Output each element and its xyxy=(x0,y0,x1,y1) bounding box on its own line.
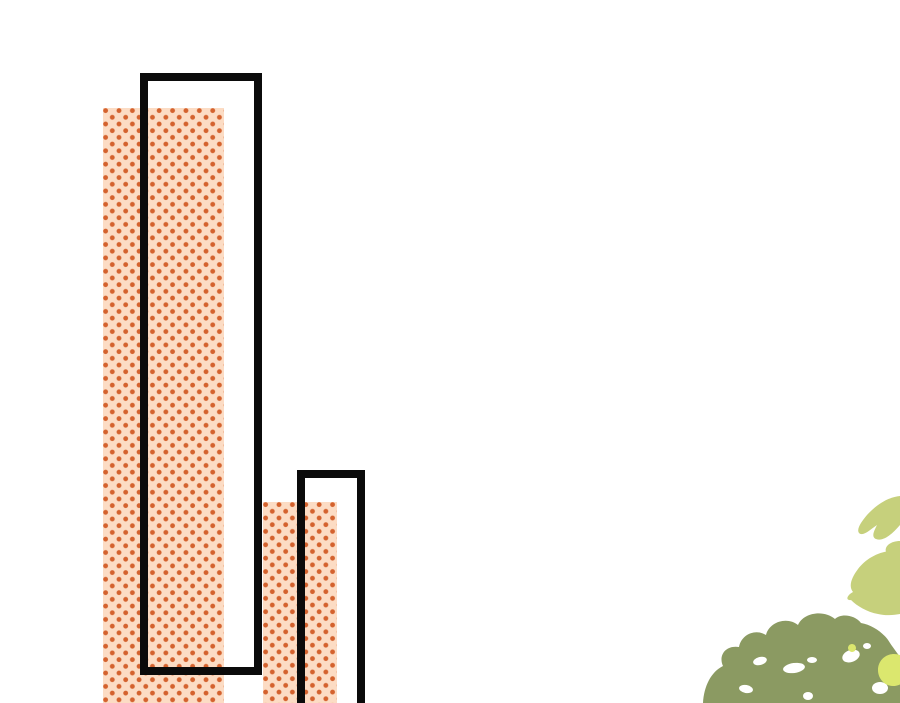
light-leaf-lower-shape xyxy=(847,551,900,615)
bush-speckle xyxy=(863,643,871,649)
comic-panel xyxy=(0,0,900,703)
building-outline-left xyxy=(140,73,262,675)
light-leaf-upper-shape xyxy=(858,496,900,540)
bush-shape xyxy=(703,613,900,703)
building-outline-right xyxy=(297,470,365,703)
bush-speckle xyxy=(803,692,813,700)
bush-speckle xyxy=(807,657,817,663)
foliage-art xyxy=(660,470,900,703)
